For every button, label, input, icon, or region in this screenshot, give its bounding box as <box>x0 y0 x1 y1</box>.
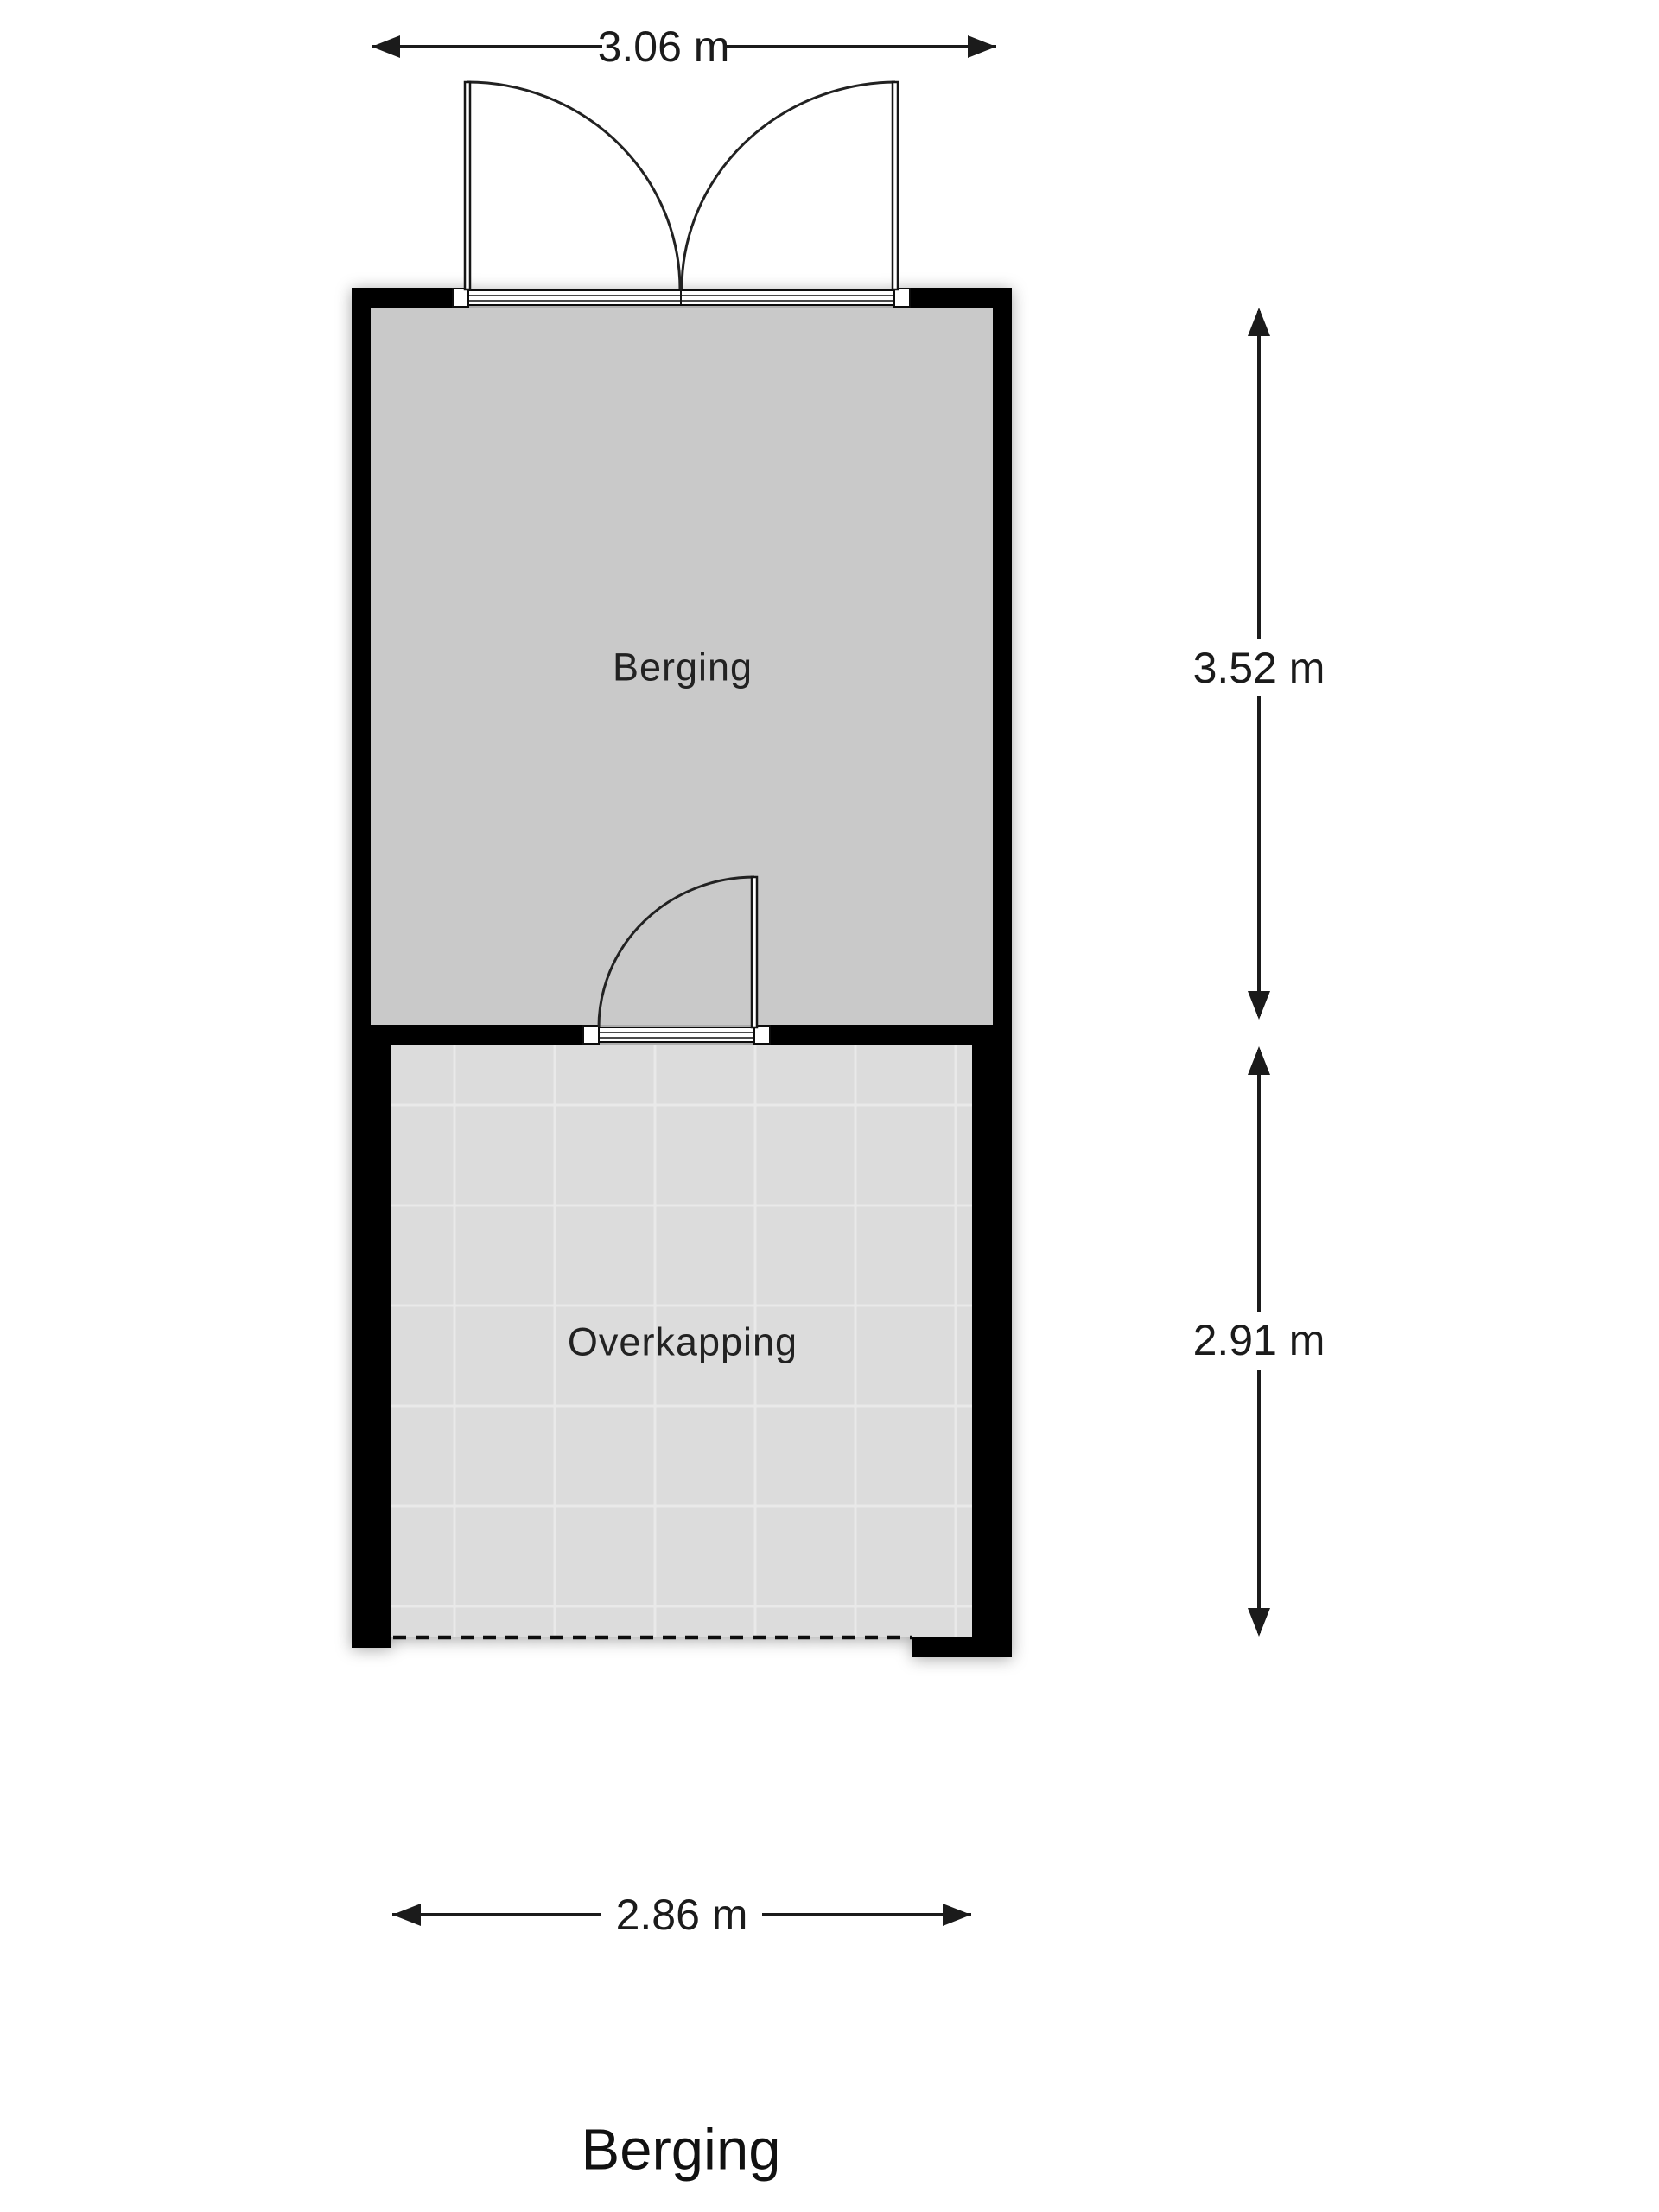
page-title: Berging <box>582 2118 781 2183</box>
top-door-right-post <box>894 289 910 307</box>
building <box>352 288 1012 1657</box>
inner-door-sill <box>599 1027 754 1042</box>
arrow-left-icon <box>372 35 400 58</box>
door-swing-arc <box>682 82 895 289</box>
floor-plan-svg: Berging Overkapping 3.06 m 3.52 m 2.91 m… <box>0 0 1659 2212</box>
arrow-down-icon <box>1248 991 1270 1020</box>
inner-door-left-post <box>583 1026 599 1044</box>
dimension-label-bottom: 2.86 m <box>616 1891 748 1939</box>
berging-left-wall <box>352 288 371 1045</box>
door-swing-arc <box>467 82 680 289</box>
dimension-label-side-upper: 3.52 m <box>1193 644 1325 692</box>
floor-plan-page: Berging Overkapping 3.06 m 3.52 m 2.91 m… <box>0 0 1659 2212</box>
dimension-side-upper: 3.52 m <box>1193 308 1325 1020</box>
room-label-overkapping: Overkapping <box>568 1320 798 1364</box>
dimension-side-lower: 2.91 m <box>1193 1046 1325 1637</box>
room-label-berging: Berging <box>613 645 753 690</box>
overkapping-left-wall <box>352 1045 391 1648</box>
dimension-label-top: 3.06 m <box>598 22 730 71</box>
dimension-label-side-lower: 2.91 m <box>1193 1316 1325 1364</box>
arrow-left-icon <box>392 1904 421 1926</box>
berging-right-wall <box>993 288 1012 1045</box>
dimension-bottom: 2.86 m <box>392 1891 971 1939</box>
arrow-right-icon <box>943 1904 971 1926</box>
middle-wall-right-segment <box>770 1025 1012 1045</box>
arrow-right-icon <box>968 35 996 58</box>
overkapping-bottom-right-foot <box>912 1637 1012 1657</box>
arrow-down-icon <box>1248 1608 1270 1637</box>
arrow-up-icon <box>1248 308 1270 336</box>
door-leaf <box>752 877 757 1027</box>
arrow-up-icon <box>1248 1046 1270 1075</box>
middle-wall-left-segment <box>352 1025 583 1045</box>
overkapping-right-wall <box>972 1045 1012 1657</box>
door-leaf <box>465 82 470 289</box>
door-leaf <box>893 82 898 289</box>
dimension-top: 3.06 m <box>372 22 996 71</box>
top-door-left-post <box>453 289 468 307</box>
